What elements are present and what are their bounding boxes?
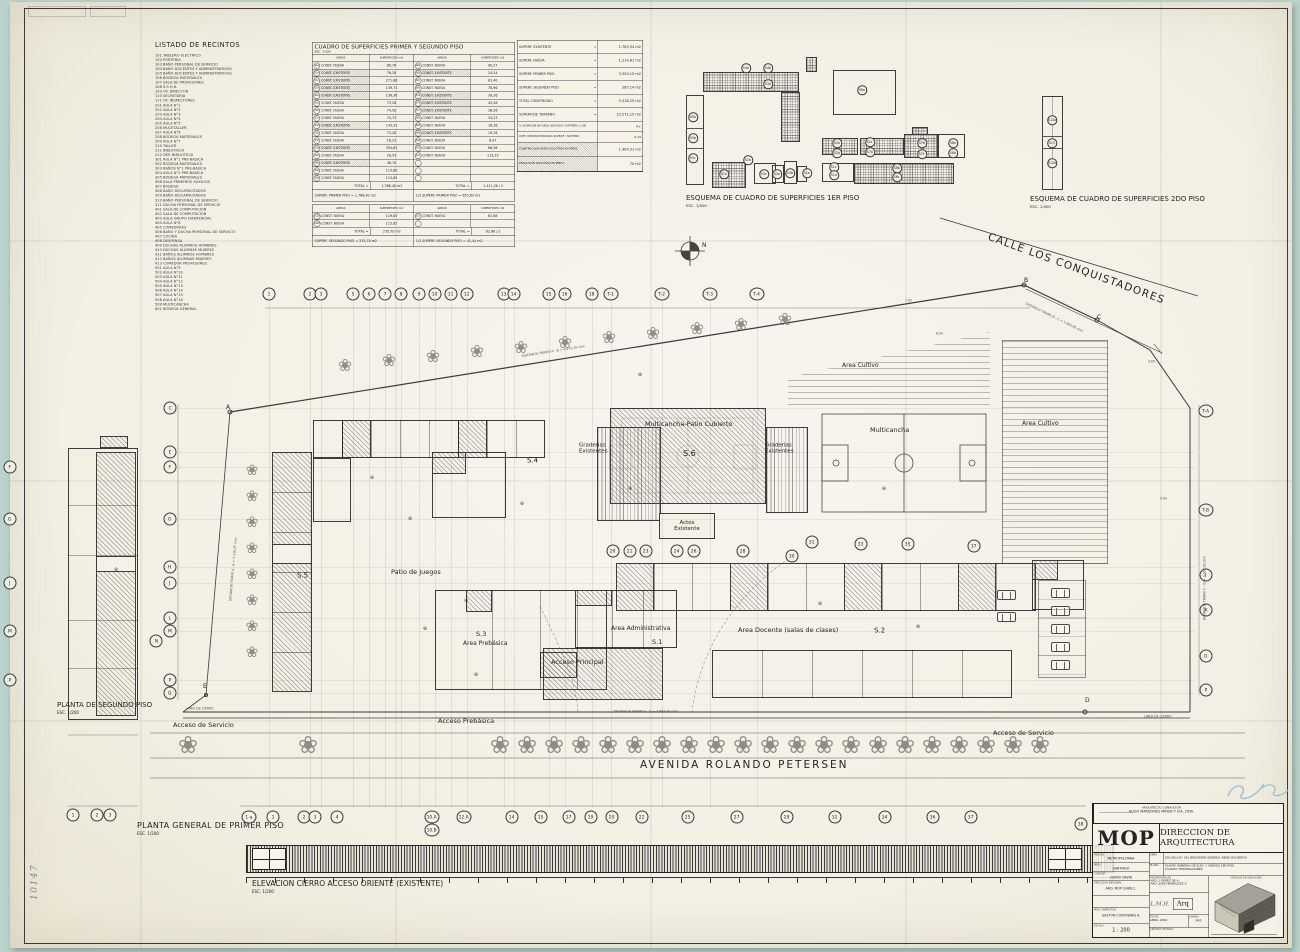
superficie-cell: 19,26: [471, 130, 514, 137]
esquema-bubble-s7b: S7b: [917, 138, 927, 148]
wall-line: [643, 590, 644, 648]
area-tag: S7b: [415, 100, 422, 107]
cuadro-header-3: SUPERFICIES m2: [471, 205, 515, 212]
total-value: 1.311,26 / 2: [472, 182, 515, 190]
plan-label-graderias-existentes: Graderias Existentes: [579, 442, 636, 467]
car-window: [1064, 662, 1065, 669]
area-name: CONST. NUEVA: [321, 131, 344, 135]
wall-line: [458, 420, 459, 458]
dim-text-label: DISTANCIA TRAMO C - D = 3.063,00 cms: [1203, 556, 1207, 620]
area-tag: S6b: [415, 70, 422, 77]
tree-icon: ❀: [470, 342, 484, 362]
grid-bubble-label: P: [1205, 688, 1208, 693]
resumen-label: SUPERFICIE TERRENO: [518, 113, 593, 117]
resumen-value: 1.463,31 m2: [598, 143, 643, 157]
cuadro-row: S1cCONST. EXISTENTE271,66S6cCONST. NUEVA…: [313, 77, 515, 85]
area-tag: [415, 167, 422, 174]
area-tag: S6d: [415, 85, 422, 92]
grid-bubble-label: 37: [968, 815, 974, 820]
plan-label-text: Graderias Existentes: [579, 442, 608, 454]
point-c: C: [1097, 315, 1101, 322]
plan-label-area-cultivo: Area Cultivo: [842, 358, 915, 376]
wall-line: [272, 492, 312, 493]
tree-icon: ❀: [558, 333, 572, 353]
grid-bubble-label: 1-a: [245, 815, 252, 820]
point-d: D: [1085, 698, 1090, 705]
area-tag: S1d: [314, 85, 321, 92]
plan-label-s-1: S.1: [652, 635, 673, 653]
area-tag: S1a: [314, 62, 321, 69]
area-tag: S6c: [415, 77, 422, 84]
area-tag: S3b: [314, 130, 321, 137]
grid-bubble-label: 24: [674, 549, 680, 554]
area-cell: S6dCONST. NUEVA: [414, 85, 471, 92]
grid-bubble-n: N: [150, 635, 163, 648]
tree-icon: ❀: [1003, 731, 1023, 759]
area-cell: [414, 220, 471, 227]
wall-line: [768, 563, 769, 611]
point-a: A: [226, 405, 230, 412]
cuadro-row: S1bCONST. EXISTENTE76,28S6bCONST. EXISTE…: [313, 70, 515, 78]
plan-label-s-4: S.4: [527, 454, 549, 472]
esquema-bubble-s8a: S8a: [948, 138, 958, 148]
elevacion-gate: [1048, 848, 1082, 870]
area-name: CONST. NUEVA: [321, 222, 344, 226]
grid-bubble-label: F: [169, 465, 172, 470]
superficie-cell: 113,85: [370, 175, 414, 182]
grid-bubble-l: L: [164, 612, 177, 625]
grid-bubble-34: 34: [879, 811, 892, 824]
grid-line-v: [369, 302, 370, 808]
tree-icon: ❀: [1030, 731, 1050, 759]
grid-bubble-o: O: [1200, 650, 1213, 663]
area-name: CONST. NUEVA: [321, 139, 344, 143]
wall-line: [492, 590, 493, 690]
superficie-cell: 82,88: [471, 213, 514, 220]
elevacion-strip: [246, 845, 1114, 873]
wall-line: [272, 652, 312, 653]
field-plano-label: PLANO: [1150, 864, 1165, 876]
field-obra-label: OBRA: [1150, 853, 1165, 863]
car-window: [1056, 590, 1057, 597]
esquema-bubble-label: S7b: [919, 141, 925, 145]
wall-line: [371, 420, 372, 458]
grid-bubble-label: E: [169, 450, 172, 455]
tree-icon: ❀: [338, 356, 352, 376]
car-icon: [1051, 606, 1070, 616]
area-cell: S1cCONST. EXISTENTE: [313, 77, 370, 84]
car-icon: [1051, 660, 1070, 670]
area-cell: S2aCONST. NUEVA: [313, 100, 370, 107]
resumen-small-row: % OCUPACION DE SUELO (SUP.OCUP. / SUP.TE…: [518, 122, 643, 133]
car-icon: [997, 590, 1016, 600]
area-name: CONST. NUEVA: [321, 116, 344, 120]
croquis-sketch: [1209, 880, 1279, 938]
esquema1-esc: ESC. 1/500: [686, 204, 707, 208]
cuadro-row: S1dCONST. EXISTENTE139,71S6dCONST. NUEVA…: [313, 85, 515, 93]
area-name: CONST. NUEVA: [422, 139, 445, 143]
grid-bubble-11: 11: [445, 288, 458, 301]
actos-existente-label: Actos Existente: [674, 520, 700, 532]
area-tag: S13: [415, 213, 422, 220]
grid-bubble-label: 10.B: [427, 828, 437, 833]
field-prov: PROV. SANTIAGO: [1093, 863, 1149, 872]
esquema-bubble-label: S4b: [765, 66, 771, 70]
grid-bubble-label: N: [154, 639, 157, 644]
field-profesionales: PROFESIONALES ARQ. J. PEREZ DE A. ARQ. J…: [1150, 876, 1209, 893]
area-tag: S3d: [314, 145, 321, 152]
field-plano-value2: CUADRO TERMINACIONES: [1165, 868, 1282, 871]
point-e: E: [203, 684, 207, 691]
cuadro-row: S3bCONST. NUEVA73,20S9aCONST. EXISTENTE1…: [313, 130, 515, 138]
grid-bubble-24: 24: [671, 545, 684, 558]
superficie-cell: 74,73: [370, 115, 414, 122]
tree-icon: ❀: [949, 731, 969, 759]
area-tag: [415, 175, 422, 182]
cuadro-esc: ESC. 1/100: [315, 50, 513, 54]
area-name: CONST. EXISTENTE: [422, 71, 451, 75]
esquema-bubble-s1b: S1b: [743, 155, 753, 165]
total-value: 1.766,40 m2: [370, 182, 413, 190]
resumen-value: 287,14 m2: [598, 81, 643, 94]
grid-bubble-label: 12: [464, 292, 470, 297]
resumen-small-row: COEF. CONSTRUCTIBILIDAD (SUP.EDIF. / SUP…: [518, 132, 643, 143]
wall-line: [272, 572, 312, 573]
grid-bubble-label: 32: [832, 815, 838, 820]
area-cell: S9aCONST. EXISTENTE: [414, 130, 471, 137]
area-tag: S8a: [415, 115, 422, 122]
wall-line: [920, 563, 921, 611]
wall-line: [272, 532, 312, 533]
grid-bubble-label: 37: [971, 544, 977, 549]
grid-bubble-12-a: 12.A: [457, 811, 472, 824]
grid-bubble-label: H: [168, 565, 171, 570]
car-window: [1056, 608, 1057, 615]
graderias-right: [766, 427, 808, 513]
plan-label-text: S.6: [683, 449, 696, 458]
tree-icon: ❀: [246, 539, 259, 557]
dim-text-label: LINEA DE CIERRO: [1144, 715, 1172, 719]
field-lamina-value: A-0: [1189, 919, 1208, 923]
superficie-cell: 113,60: [370, 167, 414, 174]
car-icon: [1051, 624, 1070, 634]
tree-icon: ❀: [598, 731, 618, 759]
area-name: CONST. NUEVA: [422, 124, 445, 128]
cuadro-row: S3aCONST. EXISTENTE143,31S8bCONST. NUEVA…: [313, 122, 515, 130]
level-mark-icon: ⊕: [114, 567, 118, 573]
grid-bubble-label: P: [9, 678, 12, 683]
superficie-cell: 36,26: [471, 107, 514, 114]
esquema-bubble-s8b: S8b: [948, 148, 958, 158]
grid-bubble-label: M: [8, 629, 12, 634]
field-comuna-value: CERRO NAVIA: [1094, 876, 1148, 880]
grid-bubble-label: T-4: [754, 292, 761, 297]
esquema1-block: [912, 127, 928, 135]
cuadro-total-row: TOTAL =235,70 m2TOTAL =82,88 / 2: [313, 228, 515, 236]
grid-bubble-label: Q: [168, 691, 171, 696]
grid-bubble-g: G: [164, 513, 177, 526]
consultant-cell: ARQUITECTO CONSULTOR HUGO MARDONES MAYER…: [1094, 804, 1300, 823]
resumen-hatch-row: DEMOLICION SOLICITADA EN PERFIL70 m2: [518, 157, 643, 172]
tree-icon: ❀: [517, 731, 537, 759]
plan-label-area-cultivo: Area Cultivo: [1022, 416, 1095, 434]
esquema-bubble-label: S8b: [950, 151, 956, 155]
elevacion-esc: ESC. 1/200: [252, 890, 274, 894]
area-cell: S6bCONST. EXISTENTE: [414, 70, 471, 77]
wall-line: [429, 420, 430, 458]
esquema-bubble-s2c: S2c: [865, 137, 875, 147]
grid-bubble-9: 9: [413, 288, 426, 301]
area-cell: S7cCONST. EXISTENTE: [414, 107, 471, 114]
area-cell: S1bCONST. EXISTENTE: [313, 70, 370, 77]
tree-icon: ❀: [778, 310, 792, 330]
area-cell: S8aCONST. NUEVA: [414, 115, 471, 122]
superficie-cell: 115,85: [370, 220, 414, 227]
area-name: CONST. EXISTENTE: [321, 146, 350, 150]
grid-bubble-label: 7: [384, 292, 387, 297]
wall-line: [862, 650, 863, 698]
esquema-bubble-label: S1d: [831, 173, 837, 177]
esquema-bubble-s1a: S1a: [719, 169, 729, 179]
band2-left: SUPERF. SEGUNDO PISO = 235,70 m2: [313, 236, 414, 247]
field-prof-name2: ARQ. JOSE HENRIQUEZ V.: [1151, 883, 1208, 886]
area-tag: S10: [415, 145, 422, 152]
superficie-cell: 136,36: [370, 92, 414, 99]
area-cell: S4aCONST. NUEVA: [313, 152, 370, 159]
grid-bubble-15: 15: [535, 811, 548, 824]
esquema-bubble-label: S2c: [867, 140, 873, 144]
grid-bubble-label: J: [169, 581, 170, 586]
esquema-bubble-s3c: S3c: [759, 169, 769, 179]
grid-bubble-label: T-2: [659, 292, 666, 297]
field-region: REGION METROPOLITANA: [1093, 853, 1149, 863]
resumen-row: SUPERFICIE TERRENO=10.271,15 m2: [518, 108, 643, 122]
area-tag: S2c: [314, 115, 321, 122]
superficie-cell: 80,78: [370, 62, 414, 69]
cuadro-row: S4bCONST. EXISTENTE46,70: [313, 160, 515, 168]
resumen-label: SUPERF. SEGUNDO PISO: [518, 86, 593, 90]
grid-bubble-c: C: [164, 402, 177, 415]
esquema-bubble-s5c: S5c: [688, 153, 698, 163]
east-wing-cell: [1032, 560, 1058, 580]
grid-bubble-label: 10.A: [427, 815, 437, 820]
plan-label-text: Patio de Juegos: [391, 569, 441, 576]
title-block-croquis: CROQUIS DE UBICACION: [1209, 876, 1283, 937]
area-cell: [414, 167, 471, 174]
wall-line: [487, 420, 488, 458]
level-mark-icon: ⊕: [370, 475, 374, 481]
arq-stamp: Arq: [1173, 898, 1193, 910]
grid-bubble-label: T-3: [707, 292, 714, 297]
tree-icon: ❀: [246, 617, 259, 635]
grid-bubble-label: T-A: [1203, 409, 1210, 414]
level-mark-icon: ⊕: [408, 516, 412, 522]
superficie-cell: 78,96: [471, 85, 514, 92]
dim-text: DISTANCIA TRAMO E - D = 3.865,00 cms: [614, 701, 756, 719]
grid-bubble-m: M: [4, 625, 17, 638]
tree-icon: ❀: [922, 731, 942, 759]
plan-label-area-preb-sica: Area Prebásica: [463, 636, 552, 654]
area-name: CONST. NUEVA: [422, 86, 445, 90]
field-escala: ESCALA 1 : 200: [1093, 924, 1149, 937]
superficie-cell: 119,85: [370, 213, 414, 220]
cuadro-row: S4aCONST. NUEVA28,54S11CONST. NUEVA113,3…: [313, 152, 515, 160]
area-name: CONST. NUEVA: [321, 101, 344, 105]
area-cell: S2cCONST. NUEVA: [313, 115, 370, 122]
superficie-cell: [471, 220, 514, 227]
area-cell: S6aCONST. NUEVA: [414, 62, 471, 69]
grid-bubble-1-a: 1-a: [242, 811, 257, 824]
tree-icon: ❀: [787, 731, 807, 759]
car-window: [1056, 626, 1057, 633]
cuadro-row: S3dCONST. EXISTENTE394,61S10CONST. NUEVA…: [313, 145, 515, 153]
esquema-bubble-label: S3c: [761, 172, 767, 176]
grid-bubble-p: P: [164, 674, 177, 687]
car-window: [1064, 644, 1065, 651]
tree-icon: ❀: [679, 731, 699, 759]
area-cell: S12bCONST. NUEVA: [313, 220, 370, 227]
area-tag: S12a: [314, 213, 321, 220]
grid-bubble-t-3: T-3: [703, 288, 718, 301]
cuadro-de-superficies: CUADRO DE SUPERFICIES PRIMER Y SEGUNDO P…: [312, 42, 515, 452]
cuadro-header-3: SUPERFICIES m2: [471, 55, 515, 62]
superficie-cell: 73,20: [370, 130, 414, 137]
grid-bubble-label: 10: [432, 292, 438, 297]
car-window: [1002, 592, 1003, 599]
superficie-cell: 90,27: [471, 62, 514, 69]
grid-bubble-10-a: 10.A: [425, 811, 440, 824]
area-tag: S5a: [314, 167, 321, 174]
cuadro-row: S2cCONST. NUEVA74,73S8aCONST. NUEVA34,23: [313, 115, 515, 123]
grid-bubble-26: 26: [688, 545, 701, 558]
grid-bubble-23: 23: [640, 545, 653, 558]
superficie-cell: 113,33: [471, 152, 514, 159]
grid-bubble-label: 29: [784, 815, 790, 820]
esquema-bubble-s3a: S3a: [772, 169, 782, 179]
dim-text-label: LINEA DE CIERRO: [186, 707, 214, 711]
cuadro-row: S3cCONST. NUEVA16,23S9bCONST. NUEVA8,97: [313, 137, 515, 145]
esquema-bubble-s12b: S12b: [1047, 158, 1057, 168]
grid-bubble-20: 20: [607, 545, 620, 558]
title-block-body: REGION METROPOLITANA PROV. SANTIAGO COMU…: [1093, 853, 1283, 937]
superficie-cell: 45,26: [471, 100, 514, 107]
grid-bubble-label: G: [168, 517, 171, 522]
grid-bubble-17: 17: [563, 811, 576, 824]
area-cell: S13CONST. NUEVA: [414, 213, 471, 220]
area-name: CONST. EXISTENTE: [321, 79, 350, 83]
resumen-value: P.V.: [598, 122, 643, 132]
grid-bubble-label: 3: [109, 813, 112, 818]
area-tag: [415, 160, 422, 167]
superficie-cell: 24,54: [471, 70, 514, 77]
area-tag: S8b: [415, 122, 422, 129]
area-name: CONST. EXISTENTE: [422, 94, 451, 98]
area-tag: S12b: [314, 220, 321, 227]
grid-line-h: [178, 693, 1195, 694]
grid-bubble-label: 4: [336, 815, 339, 820]
field-comuna: COMUNA CERRO NAVIA: [1093, 872, 1149, 881]
plan-label-s-6: S.6: [683, 449, 708, 467]
handwritten-corner-mark: 10147: [30, 864, 40, 900]
area-name: CONST. EXISTENTE: [321, 94, 350, 98]
grid-bubble-18: 18: [586, 288, 599, 301]
grid-bubble-label: 21: [627, 549, 633, 554]
dim-text: LINEA DE CIERRO: [1144, 706, 1205, 724]
grid-bubble-10: 10: [429, 288, 442, 301]
cuadro-row: S2bCONST. NUEVA74,50S7cCONST. EXISTENTE3…: [313, 107, 515, 115]
area-cell: S4bCONST. EXISTENTE: [313, 160, 370, 167]
tree-icon: ❀: [298, 731, 318, 759]
tree-icon: ❀: [544, 731, 564, 759]
esquema-bubble-label: S1b: [745, 158, 751, 162]
total-label: TOTAL =: [414, 182, 472, 190]
field-lamina: LAMINA A-0: [1189, 915, 1209, 927]
tree-icon: ❀: [734, 315, 748, 335]
dim-text-label: DISTANCIA TRAMO E - D = 3.865,00 cms: [614, 710, 678, 714]
resumen-label: SUPERF. PRIMER PISO: [518, 72, 593, 76]
area-name: CONST. EXISTENTE: [321, 161, 350, 165]
field-firma: L.M.H. Arq: [1150, 893, 1209, 915]
field-obra: OBRA ESCUELA N° 361 BRIGADIER GENERAL RE…: [1150, 853, 1284, 864]
grid-bubble-label: 2: [309, 292, 312, 297]
cuadro-band2: SUPERF. SEGUNDO PISO = 235,70 m2 1/2 SUP…: [312, 236, 515, 248]
resumen-value: 70 m2: [598, 157, 643, 171]
esquema-bubble-s6a: S6a: [857, 85, 867, 95]
esquema-bubble-label: S1e: [804, 171, 810, 175]
tree-icon: ❀: [490, 731, 510, 759]
esquema-bubble-label: S5b: [690, 136, 696, 140]
esquema-bubble-s4b: S4b: [763, 63, 773, 73]
grid-bubble-label: 27: [734, 815, 740, 820]
cuadro-row: S5aCONST. NUEVA113,60: [313, 167, 515, 175]
classroom-cell: [958, 563, 996, 611]
car-window: [1056, 644, 1057, 651]
total-label: TOTAL =: [313, 228, 371, 236]
level-mark-icon: ⊕: [464, 598, 468, 604]
resumen-label: % OCUPACION DE SUELO (SUP.OCUP. / SUP.TE…: [518, 125, 598, 128]
tree-icon: ❀: [246, 461, 259, 479]
grid-bubble-label: O: [1204, 654, 1207, 659]
area-tag: S2b: [314, 107, 321, 114]
field-prov-value: SANTIAGO: [1094, 867, 1148, 871]
car-icon: [997, 612, 1016, 622]
level-mark-icon: ⊕: [474, 672, 478, 678]
superficie-cell: 61,40: [471, 77, 514, 84]
esquema-bubble-s7a: S7a: [865, 147, 875, 157]
car-window: [1002, 614, 1003, 621]
superficie-cell: [471, 160, 514, 167]
wall-line: [692, 563, 693, 611]
area-name: CONST. NUEVA: [422, 64, 445, 68]
grid-bubble-3: 3: [104, 809, 117, 822]
wall-line: [272, 612, 312, 613]
grid-bubble-3: 3: [309, 811, 322, 824]
superficie-cell: 39,26: [471, 92, 514, 99]
grid-bubble-label: 16: [562, 292, 568, 297]
resumen-label: DEMOLICION SOLICITADA EN PERFIL: [518, 157, 598, 171]
title-block-right-col: OBRA ESCUELA N° 361 BRIGADIER GENERAL RE…: [1150, 853, 1284, 937]
resumen-label: SUPERF. EXISTENTE: [518, 45, 593, 49]
plan-label-text: Graderias Existentes: [765, 442, 794, 454]
grid-bubble-27: 27: [731, 811, 744, 824]
grid-bubble-label: 18: [589, 292, 595, 297]
plan-label-area-docente-salas-de-clases: Area Docente (salas de clases): [738, 623, 939, 641]
esquema-bubble-label: S2b: [834, 151, 840, 155]
dim-text: 7,00: [905, 290, 921, 308]
grid-bubble-37: 37: [965, 811, 978, 824]
building-s4-cell: [432, 452, 466, 474]
band1-left: SUPERF. PRIMER PISO = 1.766,40 m2: [313, 190, 414, 201]
